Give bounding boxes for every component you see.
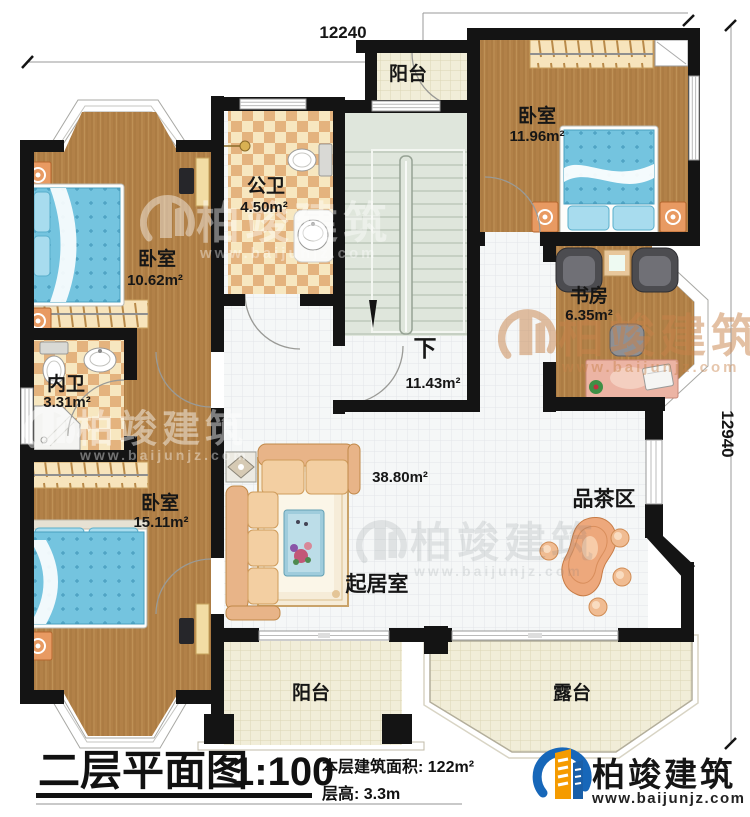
brand-name: 柏竣建筑 — [592, 756, 736, 793]
toilet — [288, 149, 316, 171]
pillow — [613, 206, 654, 230]
room-area-bedroom-tr: 11.96m² — [509, 128, 564, 145]
floor-plan-svg: 12240 12940 — [0, 0, 750, 817]
room-label-bedroom-bl: 卧室 — [141, 491, 179, 514]
stat-floor-area: 本层建筑面积: 122m² — [322, 757, 474, 776]
pillow — [34, 236, 50, 276]
watermark-text: 柏竣建筑 — [76, 409, 248, 451]
pillow — [34, 192, 50, 232]
room-area-study: 6.35m² — [565, 307, 613, 324]
floor-plan-page: 12240 12940 — [0, 0, 750, 817]
room-label-stairs-down: 下 — [414, 335, 437, 361]
room-label-terrace: 露台 — [553, 681, 591, 704]
room-label-public-bath: 公卫 — [247, 175, 285, 197]
watermark-url: www.baijunjz.com — [413, 563, 583, 579]
room-label-balcony-top: 阳台 — [389, 62, 427, 85]
room-area-inner-bath: 3.31m² — [43, 394, 91, 411]
room-label-living: 起居室 — [345, 572, 409, 596]
room-label-bedroom-tl: 卧室 — [138, 247, 176, 270]
room-label-balcony-bottom: 阳台 — [292, 681, 330, 704]
room-area-living: 38.80m² — [372, 469, 428, 486]
watermark-url: www.baijunjz.com — [79, 447, 249, 463]
light-fixture — [240, 141, 250, 151]
title-underline-light — [36, 803, 462, 805]
room-area-public-bath: 4.50m² — [240, 199, 288, 216]
brand-website: www.baijunjz.com — [591, 790, 745, 807]
stat-floor-height: 层高: 3.3m — [322, 784, 400, 803]
title-underline — [36, 793, 312, 798]
room-area-stairs: 11.43m² — [405, 375, 460, 392]
room-label-study: 书房 — [570, 284, 608, 307]
watermark-text: 柏竣建筑 — [410, 519, 598, 566]
sofa — [226, 486, 248, 610]
room-label-bedroom-tr: 卧室 — [518, 104, 556, 127]
pillow — [568, 206, 609, 230]
watermark-text: 柏竣建筑 — [196, 199, 392, 248]
title-scale: 1:100 — [232, 750, 334, 794]
watermark-url: www.baijunjz.com — [561, 359, 739, 376]
brand-logo: 柏竣建筑 www.baijunjz.com — [537, 749, 745, 807]
dimension-right: 12940 — [718, 410, 737, 457]
tv — [179, 168, 194, 194]
room-label-tea-area: 品茶区 — [573, 487, 636, 511]
watermark-url: www.baijunjz.com — [199, 245, 377, 262]
page-title: 二层平面图 — [38, 747, 248, 794]
room-area-bedroom-bl: 15.11m² — [133, 514, 188, 531]
tv — [179, 618, 194, 644]
room-area-bedroom-tl: 10.62m² — [127, 272, 183, 289]
room-label-inner-bath: 内卫 — [47, 372, 85, 395]
dimension-top: 12240 — [319, 23, 366, 42]
tv-console — [196, 604, 209, 654]
